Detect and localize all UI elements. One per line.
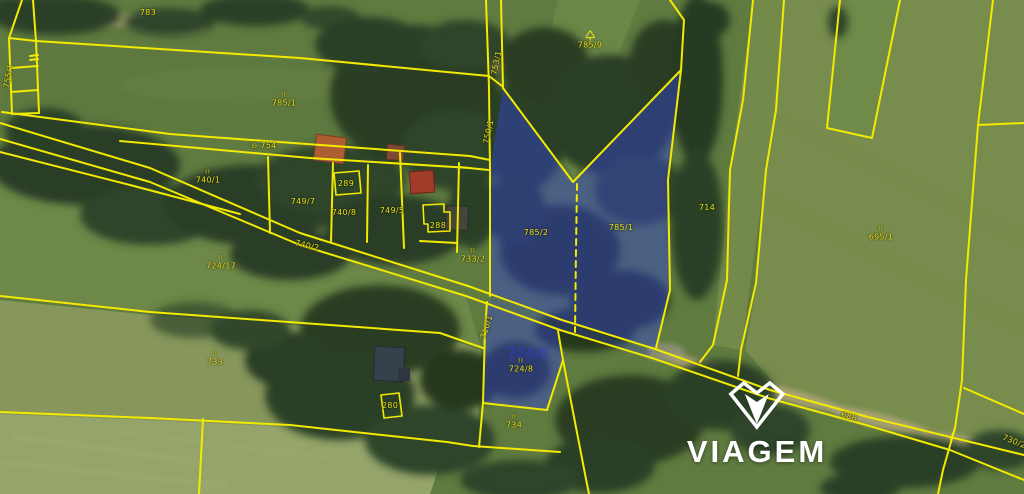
parcel-label: 783 bbox=[140, 9, 156, 17]
parcel-label: II733 bbox=[207, 352, 223, 367]
viagem-brand-text: VIAGEM bbox=[687, 434, 827, 470]
parcel-labels-layer: 783785/9II785/1⊖754II740/1289749/7740/87… bbox=[0, 0, 1024, 494]
parcel-label: II785/1 bbox=[272, 93, 297, 108]
parcel-label: II740/1 bbox=[196, 170, 221, 185]
parcel-label: 749/7 bbox=[291, 198, 316, 206]
parcel-label: 289 bbox=[338, 180, 354, 188]
parcel-label: 785/2 bbox=[524, 229, 549, 237]
parcel-label: 753/1 bbox=[491, 50, 504, 76]
parcel-label: 750/1 bbox=[483, 119, 496, 145]
parcel-label: ⊖754 bbox=[251, 142, 276, 150]
parcel-label: 280 bbox=[382, 402, 398, 410]
parcel-label: 749/5 bbox=[380, 207, 405, 215]
parcel-label: 710/1 bbox=[479, 314, 494, 340]
parcel-label: II734 bbox=[506, 415, 522, 430]
parcel-label: 688 bbox=[840, 411, 858, 423]
parcel-label: 288 bbox=[430, 222, 446, 230]
parcel-label: 730/2 bbox=[1001, 434, 1024, 451]
map-canvas[interactable]: 783785/9II785/1⊖754II740/1289749/7740/87… bbox=[0, 0, 1024, 494]
parcel-label: 785/9 bbox=[578, 31, 603, 50]
parcel-label: II695/1 bbox=[869, 227, 894, 242]
parcel-label: 785/1 bbox=[609, 224, 634, 232]
parcel-label: II724/8 bbox=[509, 359, 534, 374]
parcel-label: 740/8 bbox=[332, 209, 357, 217]
viagem-watermark: VIAGEM bbox=[687, 380, 827, 470]
parcel-label: 724/8 bbox=[507, 347, 549, 361]
viagem-gem-icon bbox=[727, 380, 787, 430]
parcel-label: II733/2 bbox=[461, 249, 486, 264]
parcel-label: II724/17 bbox=[206, 256, 236, 271]
parcel-label: 740/2 bbox=[294, 239, 320, 252]
parcel-label: 755/1 bbox=[3, 63, 15, 89]
parcel-label: 714 bbox=[699, 204, 715, 212]
